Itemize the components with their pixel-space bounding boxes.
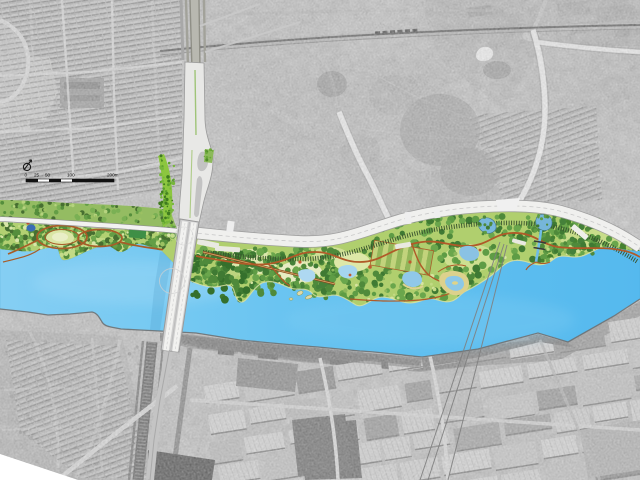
svg-text:100: 100 [67, 173, 75, 178]
svg-text:200m: 200m [107, 173, 119, 178]
svg-text:50: 50 [45, 173, 51, 178]
svg-text:0: 0 [25, 173, 28, 178]
svg-text:25: 25 [34, 173, 40, 178]
